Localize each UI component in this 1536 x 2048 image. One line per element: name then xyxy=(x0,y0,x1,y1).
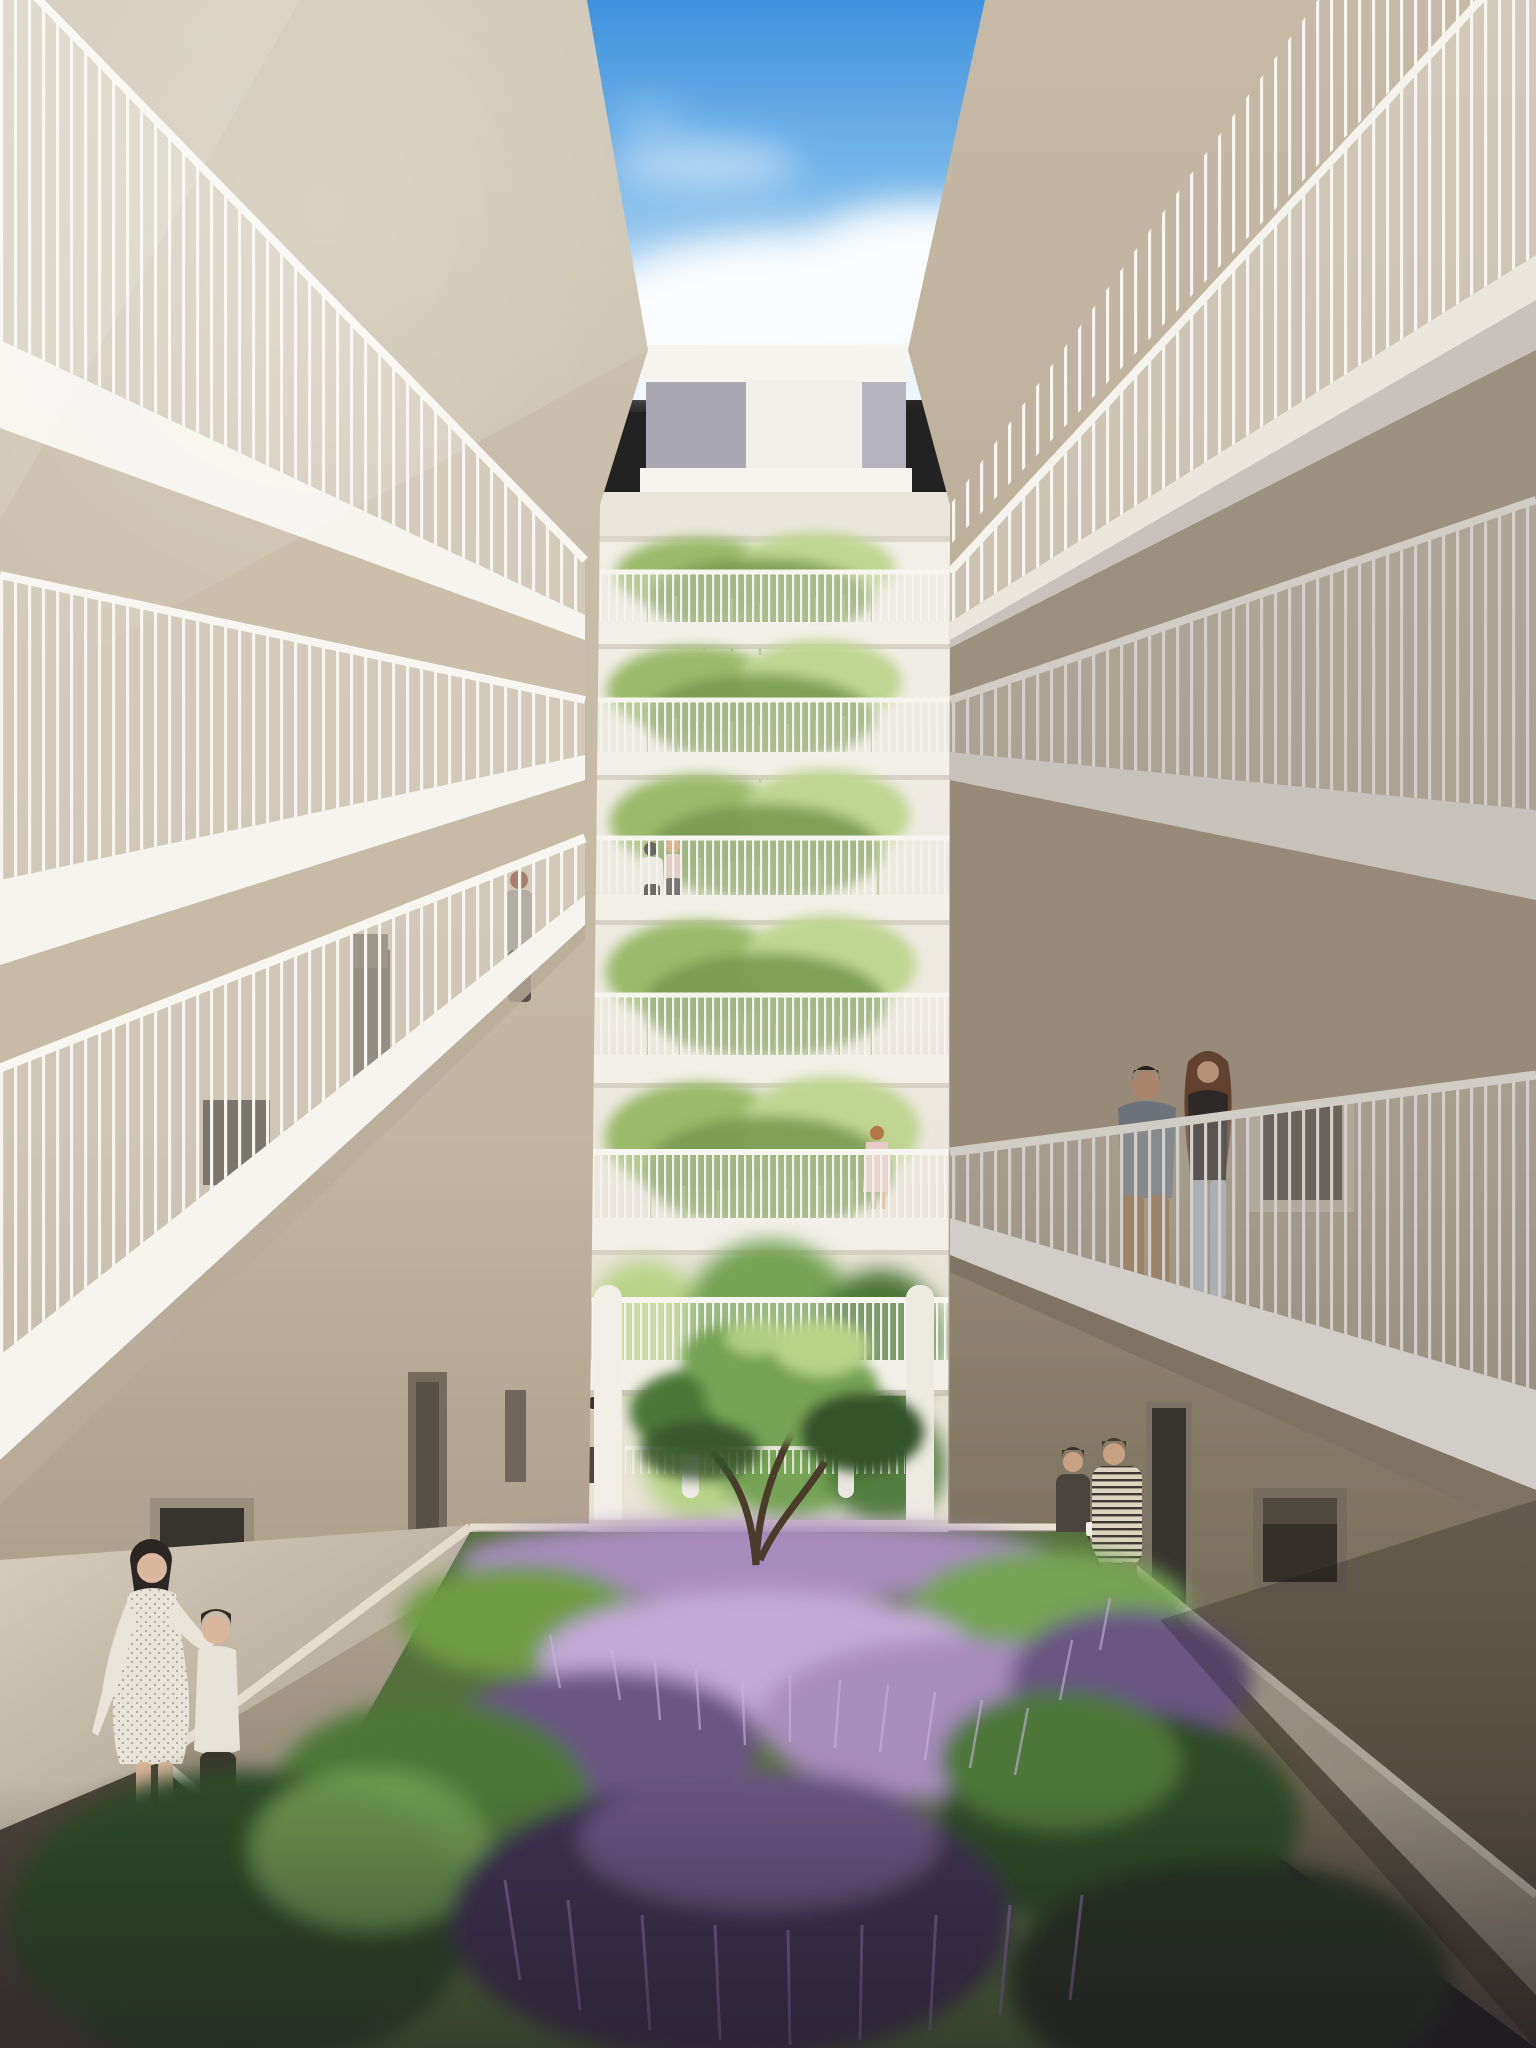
balcony-module-4 xyxy=(582,915,954,1088)
tree-canopy-highlight xyxy=(725,1321,789,1355)
balcony-module-3 xyxy=(582,769,954,925)
balcony-railing xyxy=(585,700,951,752)
bridge-slab xyxy=(640,468,912,492)
vine-balcony-modules xyxy=(582,532,954,1255)
balcony-railing xyxy=(585,572,951,622)
balcony-module-5 xyxy=(582,1076,954,1255)
head xyxy=(1063,1452,1083,1472)
bridge-fascia xyxy=(642,345,910,382)
atrium-rendering: Architectural rendering of a tall reside… xyxy=(0,0,1536,2048)
bridge-panel-white xyxy=(746,380,862,470)
slab-shadow-line xyxy=(582,1083,954,1088)
shirt xyxy=(194,1646,240,1755)
head xyxy=(1103,1443,1125,1465)
cloud-wisp xyxy=(613,139,797,191)
scene-canvas xyxy=(0,0,1536,2048)
cloud-wisp xyxy=(616,106,684,130)
balcony-railing xyxy=(585,838,951,895)
slab-shadow-line xyxy=(582,775,954,780)
head xyxy=(202,1616,230,1644)
tree-canopy-shade xyxy=(640,1420,760,1480)
tree-canopy xyxy=(774,1320,870,1376)
attic-band xyxy=(585,492,951,540)
passage-column xyxy=(594,1285,622,1545)
head xyxy=(137,1553,167,1583)
head xyxy=(870,1126,884,1140)
slab-shadow-line xyxy=(582,920,954,925)
door-panel xyxy=(416,1382,439,1537)
bridge-panel-gray-left xyxy=(646,382,746,470)
balcony-railing xyxy=(585,995,951,1055)
slab-shadow-line xyxy=(582,644,954,649)
door-recess xyxy=(505,1390,526,1482)
bottom-vignette xyxy=(0,1780,1536,2048)
tree-canopy xyxy=(800,1392,924,1472)
striped-shirt xyxy=(1092,1466,1142,1564)
balcony-railing xyxy=(585,1152,951,1218)
bridge-panel-gray-right xyxy=(862,382,906,470)
